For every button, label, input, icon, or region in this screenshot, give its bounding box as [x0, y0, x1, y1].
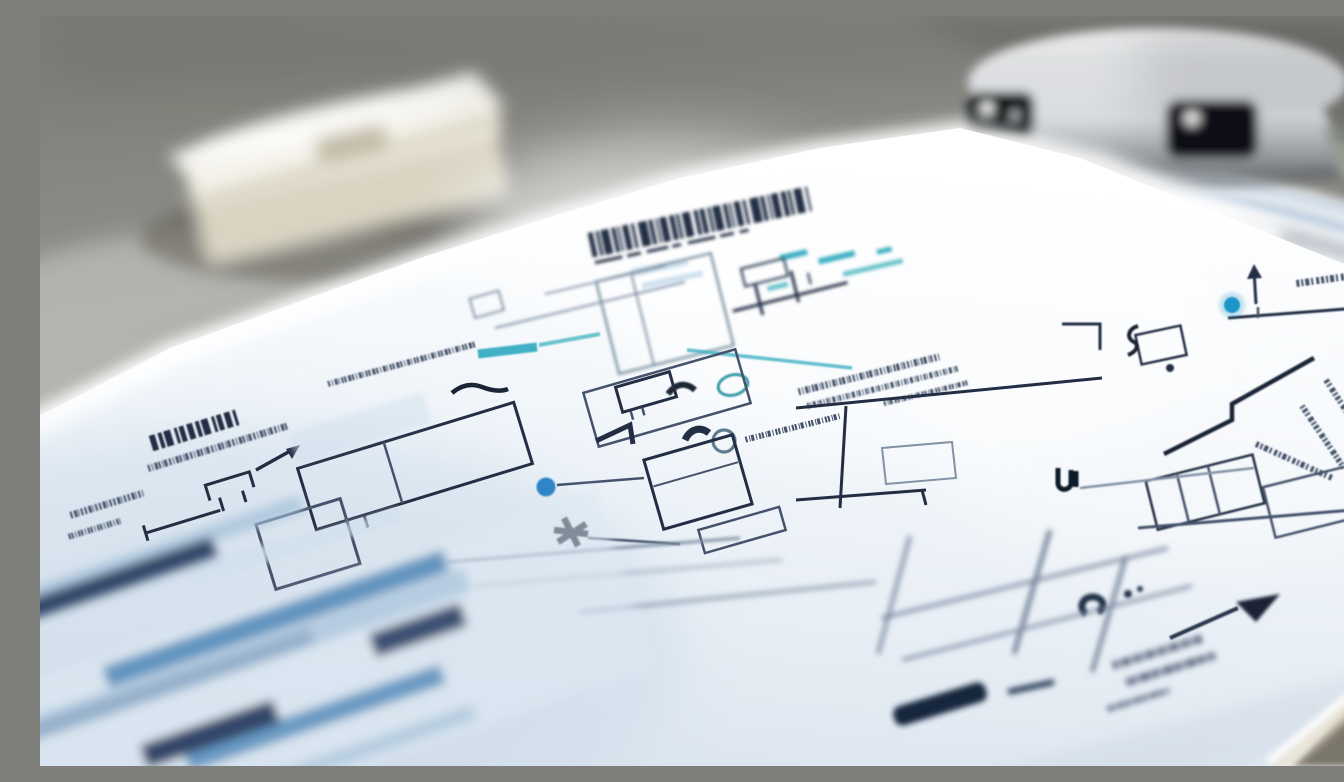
- scribble-dot: [1124, 590, 1132, 598]
- teal-dash: [877, 249, 892, 252]
- stapler-front-highlight: [980, 101, 994, 115]
- blue-dot: [537, 478, 556, 497]
- stapler-front-highlight-2: [1010, 110, 1020, 120]
- node-dot: [1166, 364, 1174, 372]
- scene-svg: [40, 16, 1344, 766]
- scribble-dot: [1137, 586, 1143, 592]
- teal-dot: [1224, 297, 1240, 313]
- photo-scene: Close-up photograph of a paper sheet wit…: [40, 16, 1344, 766]
- vignette-corner: [1140, 16, 1344, 136]
